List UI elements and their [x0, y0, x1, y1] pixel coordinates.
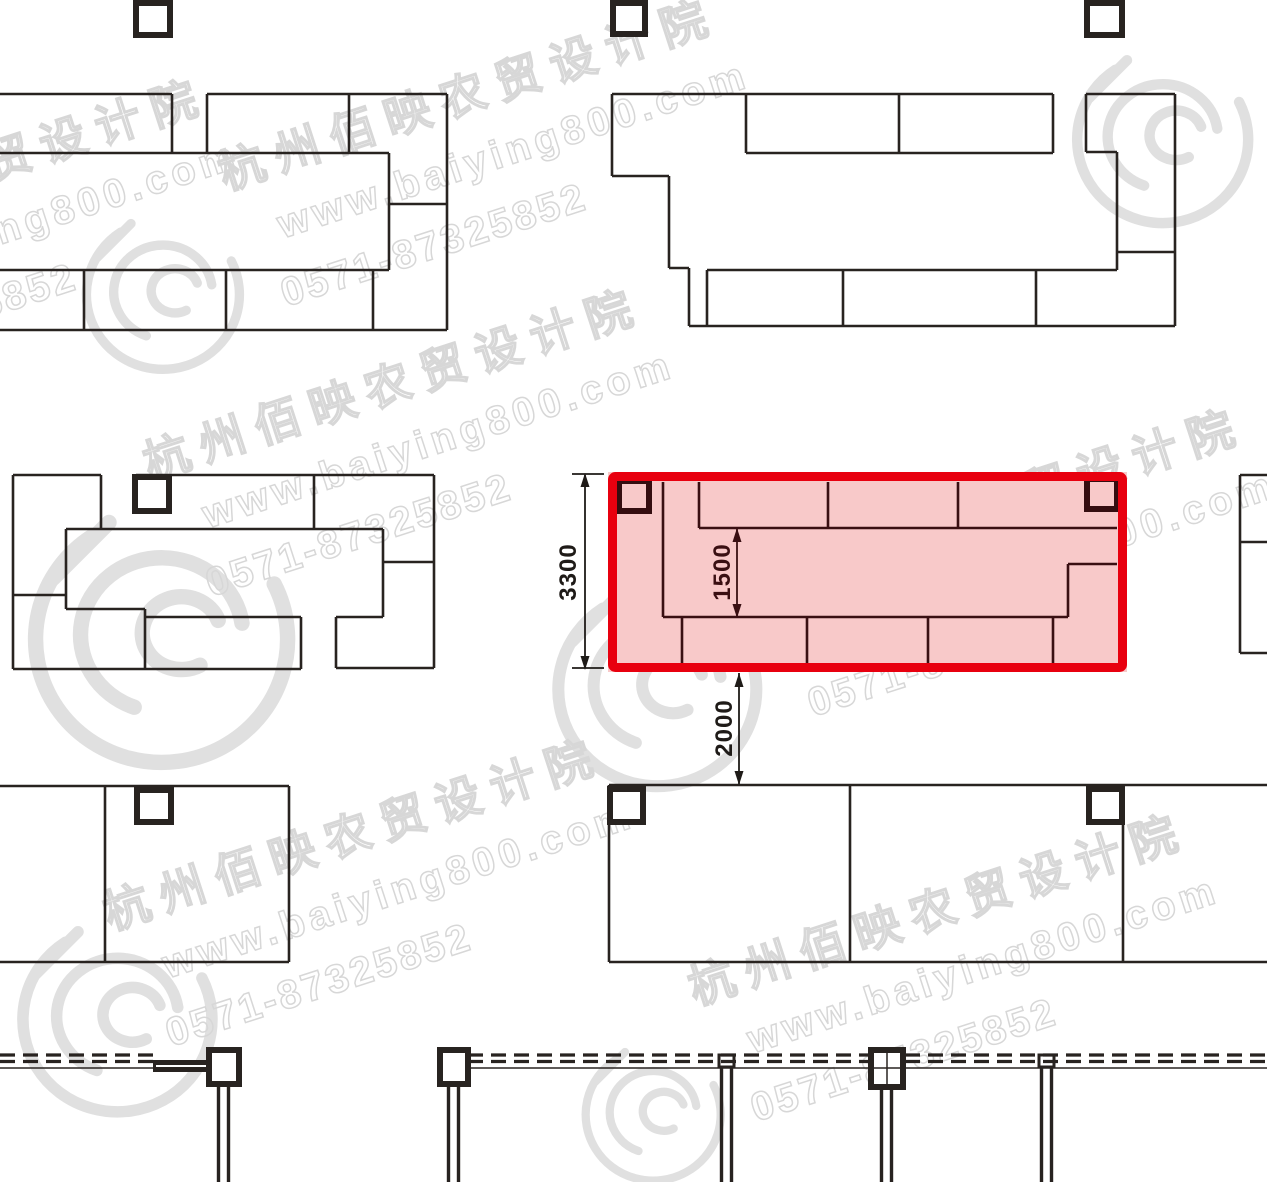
watermark-tile: 杭州佰映农贸设计院 www.baiying800.com 0571-873258…	[212, 0, 775, 322]
watermark-tile: 杭州佰映农贸设计院 www.baiying800.com 0571-873258…	[0, 65, 265, 402]
selected-stall-block[interactable]	[608, 472, 1127, 672]
column-marker	[610, 789, 643, 822]
watermark-phone: 0571-87325852	[0, 255, 83, 396]
dimension-3300-label: 3300	[555, 543, 582, 600]
watermark-tile: 杭州佰映农贸设计院 www.baiying800.com 0571-873258…	[682, 800, 1245, 1137]
column-marker	[613, 3, 645, 34]
column-marker	[1087, 3, 1122, 35]
wall-column	[209, 1050, 239, 1084]
selected-stall-fill	[608, 472, 1127, 672]
dimension-2000-label: 2000	[711, 699, 738, 756]
watermark-tile: 杭州佰映农贸设计院 www.baiying800.com 0571-873258…	[97, 725, 660, 1062]
wall-column	[440, 1050, 468, 1084]
column-marker	[136, 3, 170, 35]
column-marker	[135, 477, 169, 511]
floor-plan-canvas: 杭州佰映农贸设计院 www.baiying800.com 0571-873258…	[0, 0, 1267, 1182]
column-marker	[1089, 789, 1122, 822]
perimeter-wall	[0, 1050, 1267, 1182]
column-marker	[137, 790, 171, 822]
dimension-1500-label: 1500	[709, 543, 736, 600]
island-top-right[interactable]	[612, 94, 1175, 326]
